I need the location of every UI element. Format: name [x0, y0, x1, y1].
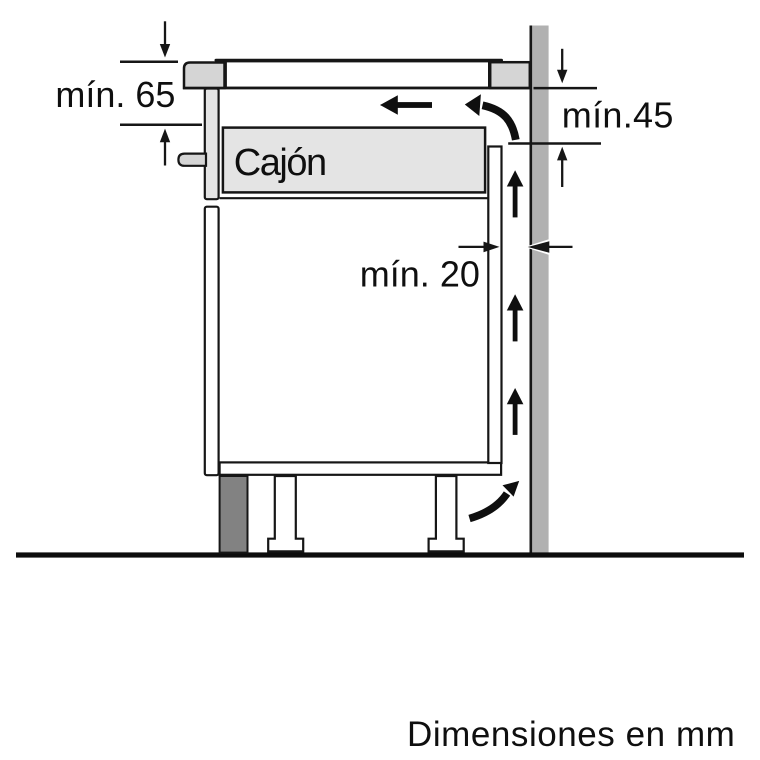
- svg-text:Cajón: Cajón: [234, 142, 326, 184]
- svg-text:mín. 20: mín. 20: [360, 253, 480, 294]
- svg-text:Dimensiones en mm: Dimensiones en mm: [407, 715, 735, 754]
- svg-text:mín.45: mín.45: [562, 94, 674, 135]
- svg-text:mín. 65: mín. 65: [55, 74, 175, 115]
